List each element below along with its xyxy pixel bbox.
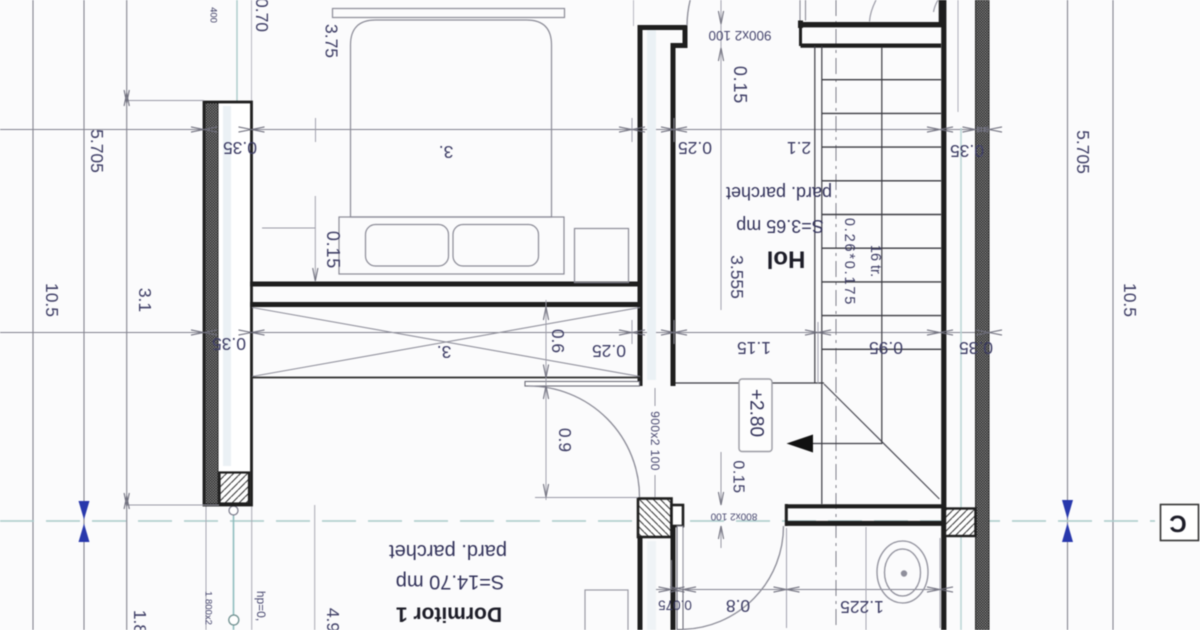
svg-text:0.6: 0.6 (548, 329, 568, 353)
svg-text:1.15: 1.15 (737, 338, 771, 358)
svg-text:S=14.70 mp: S=14.70 mp (396, 571, 504, 593)
svg-text:pard. parchet: pard. parchet (726, 183, 832, 203)
svg-text:0.95: 0.95 (869, 338, 903, 358)
svg-text:400: 400 (208, 7, 219, 23)
svg-text:900x2 100: 900x2 100 (648, 411, 662, 471)
svg-text:0.25: 0.25 (592, 341, 626, 361)
svg-text:2.1: 2.1 (787, 138, 811, 158)
svg-text:1 800x2: 1 800x2 (203, 591, 214, 625)
svg-text:0.25: 0.25 (678, 138, 712, 158)
svg-text:+2.80: +2.80 (746, 389, 767, 437)
svg-text:0.8: 0.8 (726, 596, 750, 616)
svg-text:5.705: 5.705 (1073, 130, 1093, 174)
svg-text:hp=0,: hp=0, (254, 591, 268, 621)
svg-text:3.: 3. (437, 342, 452, 362)
svg-text:Hol: Hol (767, 246, 806, 273)
svg-text:0.9: 0.9 (555, 428, 575, 452)
svg-text:10.5: 10.5 (42, 283, 62, 317)
svg-text:3.555: 3.555 (727, 255, 747, 299)
svg-text:800x2 100: 800x2 100 (710, 511, 757, 522)
svg-text:0.15: 0.15 (323, 231, 343, 269)
svg-text:1.8: 1.8 (130, 610, 150, 630)
svg-text:S=3.65 mp: S=3.65 mp (736, 216, 824, 236)
svg-text:0.15: 0.15 (730, 460, 747, 493)
svg-text:0.15: 0.15 (730, 66, 750, 104)
svg-text:5.705: 5.705 (87, 129, 107, 173)
svg-text:10.5: 10.5 (1120, 283, 1140, 317)
svg-text:0.075: 0.075 (658, 598, 692, 613)
svg-text:0.70: 0.70 (252, 0, 272, 32)
svg-text:Dormitor 1: Dormitor 1 (396, 603, 503, 626)
svg-text:3.1: 3.1 (135, 288, 155, 312)
svg-text:3.: 3. (439, 142, 454, 162)
svg-text:0.35: 0.35 (950, 141, 984, 161)
svg-text:0.35: 0.35 (212, 334, 246, 354)
svg-text:0.35: 0.35 (959, 338, 993, 358)
svg-text:4.9: 4.9 (323, 608, 343, 630)
svg-text:pard. parchet: pard. parchet (389, 540, 507, 562)
svg-text:16 tr.: 16 tr. (867, 245, 883, 277)
svg-text:1.225: 1.225 (840, 597, 884, 617)
svg-text:C: C (1169, 510, 1186, 537)
svg-text:0.26*0.175: 0.26*0.175 (841, 218, 857, 306)
svg-text:3.75: 3.75 (322, 24, 342, 58)
svg-text:900x2 100: 900x2 100 (708, 28, 771, 43)
svg-text:0.35: 0.35 (223, 138, 257, 158)
